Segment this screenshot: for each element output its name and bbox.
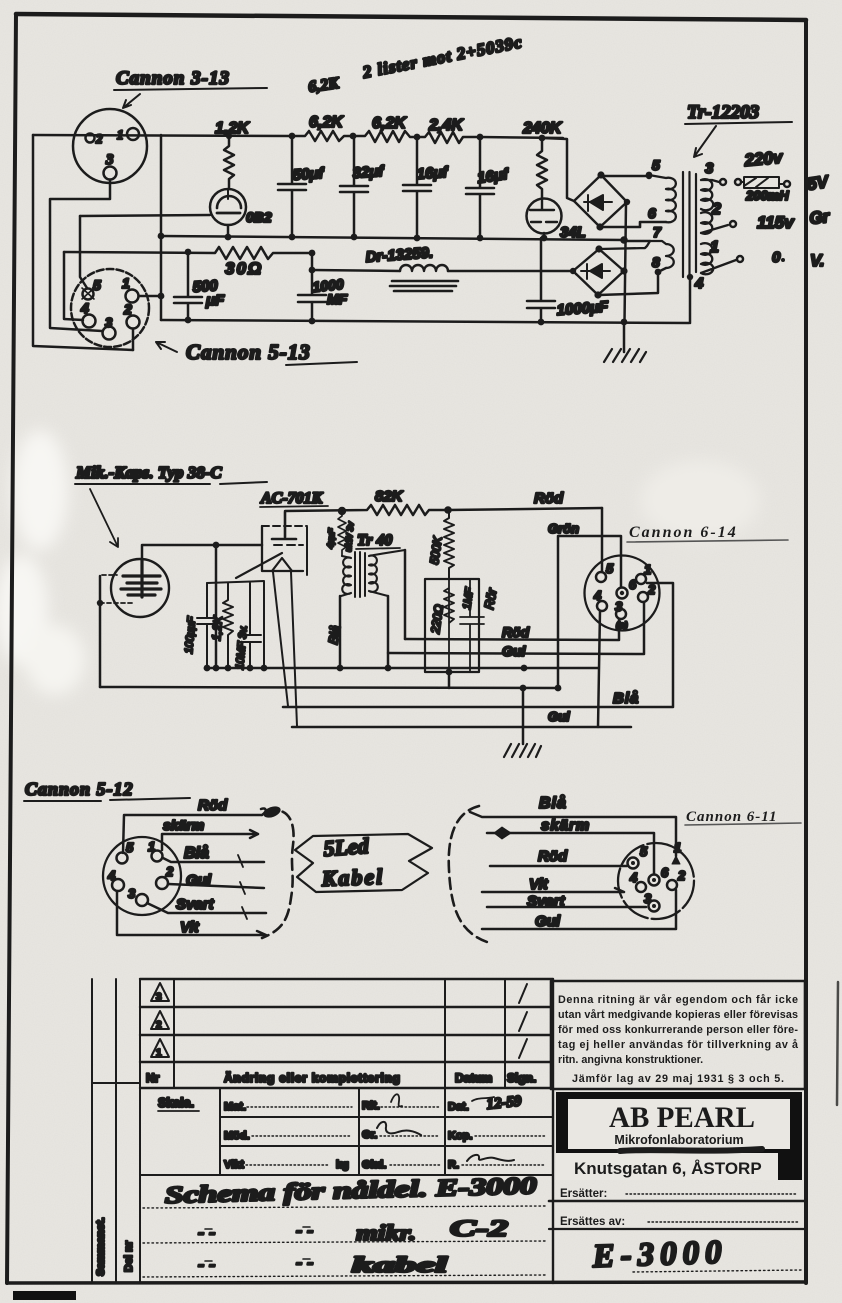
svg-text:Nr: Nr [146, 1071, 160, 1085]
svg-text:1: 1 [674, 840, 681, 855]
svg-text:4μμF: 4μμF [325, 528, 337, 550]
svg-text:Kabel: Kabel [320, 864, 384, 891]
svg-text:för med oss konkurrerande pers: för med oss konkurrerande person eller f… [558, 1024, 798, 1036]
svg-text:3: 3 [615, 599, 623, 614]
svg-text:1: 1 [122, 275, 130, 291]
svg-text:MF: MF [327, 291, 348, 307]
svg-text:200mH: 200mH [745, 188, 789, 203]
svg-text:6: 6 [629, 577, 637, 592]
svg-text:5: 5 [652, 157, 660, 173]
svg-text:0B2: 0B2 [246, 209, 272, 225]
svg-text:Gul: Gul [548, 709, 570, 724]
svg-text:Mik.-Kaps. Typ 38-C: Mik.-Kaps. Typ 38-C [75, 463, 222, 482]
svg-text:3: 3 [156, 992, 162, 1003]
svg-text:Cannon 3-13: Cannon 3-13 [116, 68, 230, 89]
svg-text:1: 1 [710, 239, 719, 256]
svg-text:Blå: Blå [539, 794, 567, 812]
svg-text:AC-701K: AC-701K [260, 490, 324, 507]
svg-text:- -: - - [198, 1222, 215, 1243]
svg-text:Rit.: Rit. [362, 1100, 380, 1112]
svg-text:Gkd.: Gkd. [362, 1159, 386, 1171]
svg-text:5: 5 [640, 844, 648, 859]
svg-text:R.: R. [448, 1159, 459, 1171]
svg-text:Jämför lag av 29 maj 1931 § 3: Jämför lag av 29 maj 1931 § 3 och 5. [572, 1073, 784, 1085]
svg-text:Röd: Röd [502, 624, 530, 640]
svg-text:Cannon 5-13: Cannon 5-13 [186, 340, 311, 364]
svg-text:6,2K: 6,2K [309, 114, 344, 131]
svg-text:Knutsgatan 6, ÅSTORP: Knutsgatan 6, ÅSTORP [574, 1159, 762, 1178]
svg-text:2: 2 [165, 864, 174, 879]
svg-text:skärm: skärm [163, 817, 204, 833]
svg-text:6: 6 [661, 865, 669, 880]
svg-text:AB PEARL: AB PEARL [609, 1101, 755, 1134]
svg-text:Cannon 6-14: Cannon 6-14 [629, 524, 738, 541]
svg-text:3: 3 [105, 152, 114, 168]
svg-text:2: 2 [711, 201, 721, 218]
svg-text:5Led: 5Led [323, 833, 371, 861]
svg-text:Cannon 5-12: Cannon 5-12 [25, 779, 134, 799]
svg-text:utan vårt medgivande kopieras: utan vårt medgivande kopieras eller före… [558, 1009, 798, 1021]
svg-text:C-2: C-2 [450, 1216, 508, 1241]
svg-text:6,2K: 6,2K [372, 115, 407, 132]
svg-text:Vit: Vit [180, 919, 200, 936]
svg-text:82K: 82K [375, 488, 404, 505]
svg-text:- -: - - [198, 1254, 215, 1275]
svg-text:Tr 40: Tr 40 [357, 532, 392, 549]
svg-text:Sign.: Sign. [507, 1071, 536, 1085]
svg-text:Mikrofonlaboratorium: Mikrofonlaboratorium [614, 1133, 743, 1147]
svg-text:5: 5 [606, 561, 614, 576]
svg-text:4: 4 [694, 275, 704, 292]
svg-text:Röd: Röd [538, 848, 568, 865]
svg-text:1: 1 [644, 562, 651, 577]
svg-text:Gul: Gul [535, 913, 561, 930]
svg-text:Ersättes av:: Ersättes av: [560, 1216, 625, 1228]
svg-text:Svart: Svart [176, 896, 215, 913]
svg-text:- -: - - [296, 1252, 313, 1273]
svg-text:Datum: Datum [455, 1071, 492, 1085]
svg-text:Blå: Blå [184, 844, 209, 862]
svg-text:Cannon 6-11: Cannon 6-11 [686, 809, 777, 825]
svg-text:16μf: 16μf [416, 164, 450, 183]
svg-text:4: 4 [107, 868, 116, 883]
svg-text:(p): (p) [616, 620, 628, 630]
svg-text:V.: V. [810, 251, 825, 270]
svg-text:Del nr: Del nr [123, 1240, 135, 1272]
svg-text:3: 3 [705, 160, 714, 177]
svg-text:50μf: 50μf [292, 165, 326, 184]
svg-text:kabel: kabel [352, 1252, 449, 1277]
svg-text:3: 3 [105, 315, 113, 330]
svg-text:6: 6 [648, 205, 656, 221]
svg-text:Gr: Gr [808, 207, 831, 228]
svg-text:Ändring eller komplettering: Ändring eller komplettering [224, 1070, 400, 1085]
svg-text:2: 2 [123, 301, 132, 317]
svg-text:Vit: Vit [529, 876, 549, 893]
svg-text:5: 5 [93, 277, 101, 293]
svg-text:Ersätter:: Ersätter: [560, 1188, 607, 1200]
svg-text:Mat.: Mat. [224, 1101, 246, 1113]
svg-text:2: 2 [677, 868, 686, 883]
svg-text:Skala.: Skala. [158, 1096, 194, 1110]
svg-text:5: 5 [126, 840, 134, 855]
svg-text:Röd: Röd [534, 490, 564, 507]
svg-text:32μf: 32μf [352, 163, 386, 182]
svg-text:- -: - - [296, 1220, 313, 1241]
svg-text:2: 2 [95, 131, 103, 146]
svg-text:4: 4 [629, 870, 638, 885]
svg-text:4: 4 [593, 588, 602, 603]
svg-text:2,4K: 2,4K [428, 117, 464, 134]
svg-text:1: 1 [156, 1048, 162, 1059]
svg-text:E-3000: E-3000 [591, 1234, 728, 1275]
svg-text:Vikt: Vikt [224, 1159, 244, 1171]
svg-text:Grön: Grön [548, 521, 579, 536]
svg-text:2: 2 [156, 1020, 162, 1031]
svg-text:Denna ritning är vår egendom o: Denna ritning är vår egendom och får ick… [558, 994, 798, 1006]
svg-text:8: 8 [652, 254, 660, 270]
svg-text:skärm: skärm [541, 817, 590, 834]
svg-text:240K: 240K [522, 120, 563, 137]
svg-text:Gul: Gul [502, 643, 526, 659]
svg-text:3: 3 [644, 891, 652, 906]
svg-text:μF: μF [205, 292, 225, 309]
svg-text:1: 1 [148, 839, 155, 854]
svg-text:30Ω: 30Ω [225, 259, 263, 278]
svg-text:7: 7 [653, 224, 662, 240]
svg-text:4: 4 [80, 300, 89, 316]
svg-text:Möd.: Möd. [224, 1130, 250, 1142]
svg-text:Kop.: Kop. [448, 1130, 472, 1142]
svg-text:kg: kg [336, 1159, 349, 1171]
svg-text:ritn. angivna konstruktioner.: ritn. angivna konstruktioner. [558, 1054, 703, 1066]
svg-text:Tr-12203: Tr-12203 [687, 102, 759, 123]
svg-text:0: 0 [772, 249, 781, 266]
svg-text:115v: 115v [757, 213, 795, 232]
svg-text:220v: 220v [743, 148, 785, 170]
svg-text:tag ej heller användas för til: tag ej heller användas för tillverkning … [558, 1039, 799, 1051]
svg-text:1,2K: 1,2K [215, 120, 250, 137]
svg-text:3: 3 [128, 886, 136, 901]
svg-text:Gr.: Gr. [362, 1129, 377, 1141]
svg-text:Dat.: Dat. [448, 1101, 469, 1113]
svg-text:Sammanst.: Sammanst. [95, 1217, 107, 1276]
svg-text:Blå: Blå [613, 690, 639, 707]
svg-text:Röd: Röd [198, 797, 228, 814]
